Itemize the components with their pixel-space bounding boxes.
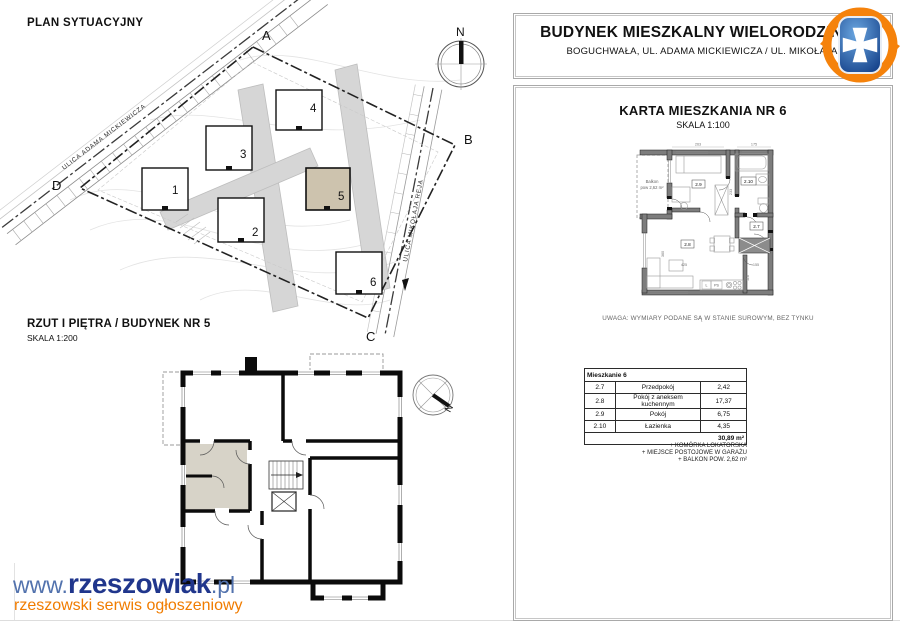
dimensions-note: UWAGA: WYMIARY PODANE SĄ W STANIE SUROWY… bbox=[513, 315, 900, 322]
north-label: N bbox=[456, 25, 465, 39]
room-no: 2.8 bbox=[585, 394, 616, 409]
floor-plan-scale: SKALA 1:200 bbox=[27, 333, 78, 343]
north2-label: N bbox=[443, 403, 456, 415]
building-1: 1 bbox=[142, 168, 188, 210]
dim-116: 116 bbox=[746, 275, 750, 281]
room-name: Przedpokój bbox=[615, 382, 701, 394]
hall-wardrobe bbox=[739, 238, 770, 253]
corner-b: B bbox=[464, 132, 473, 147]
kitchen-ps-label: PS bbox=[714, 284, 719, 288]
room-area: 17,37 bbox=[701, 394, 747, 409]
svg-text:6: 6 bbox=[370, 277, 376, 289]
room-name: Pokój bbox=[615, 409, 701, 421]
room-27-label: 2.7 bbox=[753, 224, 760, 229]
kitchen-l-label: L bbox=[706, 284, 708, 288]
logo-tld: .pl bbox=[211, 572, 235, 598]
dim-263: 263 bbox=[695, 143, 701, 147]
room-210-label: 2.10 bbox=[744, 179, 753, 184]
table-row: Mieszkanie 6 bbox=[585, 369, 747, 382]
chimney bbox=[245, 357, 257, 373]
balcony-label-2: pow 2,62 m² bbox=[640, 185, 664, 190]
listing-sheet: PLAN SYTUACYJNY bbox=[0, 0, 900, 636]
north-compass2-icon: N bbox=[413, 375, 456, 415]
table-row: 2.10 Łazienka 4,35 bbox=[585, 421, 747, 433]
room-area: 4,35 bbox=[701, 421, 747, 433]
apartment-card-scale: SKALA 1:100 bbox=[513, 120, 893, 130]
room-area: 6,75 bbox=[701, 409, 747, 421]
corner-c: C bbox=[366, 329, 375, 344]
room-labels: 2.9 2.10 2.7 2.8 bbox=[681, 177, 763, 248]
room-28-label: 2.8 bbox=[684, 242, 691, 247]
extras-list: + KOMÓRKA LOKATORSKA + MIEJSCE POSTOJOWE… bbox=[584, 443, 747, 463]
table-title: Mieszkanie 6 bbox=[585, 369, 747, 382]
rzeszow-crest-icon bbox=[820, 4, 900, 86]
balconies-dashed bbox=[163, 354, 383, 445]
dim-233: 233 bbox=[729, 189, 733, 195]
dim-360: 360 bbox=[661, 251, 665, 257]
floor-plan-title: RZUT I PIĘTRA / BUDYNEK NR 5 bbox=[27, 318, 210, 330]
corner-d: D bbox=[52, 178, 61, 193]
north-compass-icon: N bbox=[435, 25, 487, 90]
dim-175: 175 bbox=[751, 143, 757, 147]
room-29-label: 2.9 bbox=[695, 182, 702, 187]
building-4: 4 bbox=[276, 90, 322, 130]
svg-text:1: 1 bbox=[172, 185, 178, 197]
building-6: 6 bbox=[336, 252, 382, 294]
site-plan-drawing: ULICA ADAMA MICKIEWICZA ULICA MIKOŁAJA R… bbox=[0, 0, 505, 345]
building-5: 5 bbox=[306, 168, 350, 210]
room-name: Pokój z aneksem kuchennym bbox=[615, 394, 701, 409]
svg-text:5: 5 bbox=[338, 191, 344, 203]
table-row: 2.9 Pokój 6,75 bbox=[585, 409, 747, 421]
room-no: 2.10 bbox=[585, 421, 616, 433]
corner-a: A bbox=[262, 28, 271, 43]
balcony-label-1: Balkon bbox=[646, 179, 659, 184]
svg-text:3: 3 bbox=[240, 149, 246, 161]
site-tagline: rzeszowski serwis ogłoszeniowy bbox=[14, 597, 243, 615]
dim-425: 425 bbox=[681, 263, 687, 267]
dim-155: 155 bbox=[753, 263, 759, 267]
room-area: 2,42 bbox=[701, 382, 747, 394]
room-no: 2.7 bbox=[585, 382, 616, 394]
logo-brand: rzeszowiak bbox=[68, 568, 211, 599]
building-2: 2 bbox=[218, 198, 264, 242]
svg-text:4: 4 bbox=[310, 103, 317, 115]
shaft bbox=[272, 492, 296, 511]
room-no: 2.9 bbox=[585, 409, 616, 421]
street-mickiewicza-label: ULICA ADAMA MICKIEWICZA bbox=[61, 103, 147, 172]
balcony: Balkon pow 2,62 m² bbox=[637, 155, 668, 218]
apartment-card-title: KARTA MIESZKANIA NR 6 bbox=[513, 103, 893, 118]
kitchen-labels: L PS bbox=[702, 281, 722, 289]
table-row: 2.7 Przedpokój 2,42 bbox=[585, 382, 747, 394]
staircase bbox=[269, 461, 303, 489]
extra-item: + BALKON POW. 2,62 m² bbox=[584, 457, 747, 464]
logo-www: www. bbox=[13, 572, 68, 598]
building-3: 3 bbox=[206, 126, 252, 170]
apartment6-plan: Balkon pow 2,62 m² bbox=[618, 138, 822, 310]
room-table: Mieszkanie 6 2.7 Przedpokój 2,42 2.8 Pok… bbox=[584, 368, 747, 445]
table-row: 2.8 Pokój z aneksem kuchennym 17,37 bbox=[585, 394, 747, 409]
room-name: Łazienka bbox=[615, 421, 701, 433]
extra-item: + MIEJSCE POSTOJOWE W GARAŻU bbox=[584, 450, 747, 457]
site-logo: www.rzeszowiak.pl bbox=[13, 568, 235, 600]
svg-text:2: 2 bbox=[252, 227, 258, 239]
extra-item: + KOMÓRKA LOKATORSKA bbox=[584, 443, 747, 450]
